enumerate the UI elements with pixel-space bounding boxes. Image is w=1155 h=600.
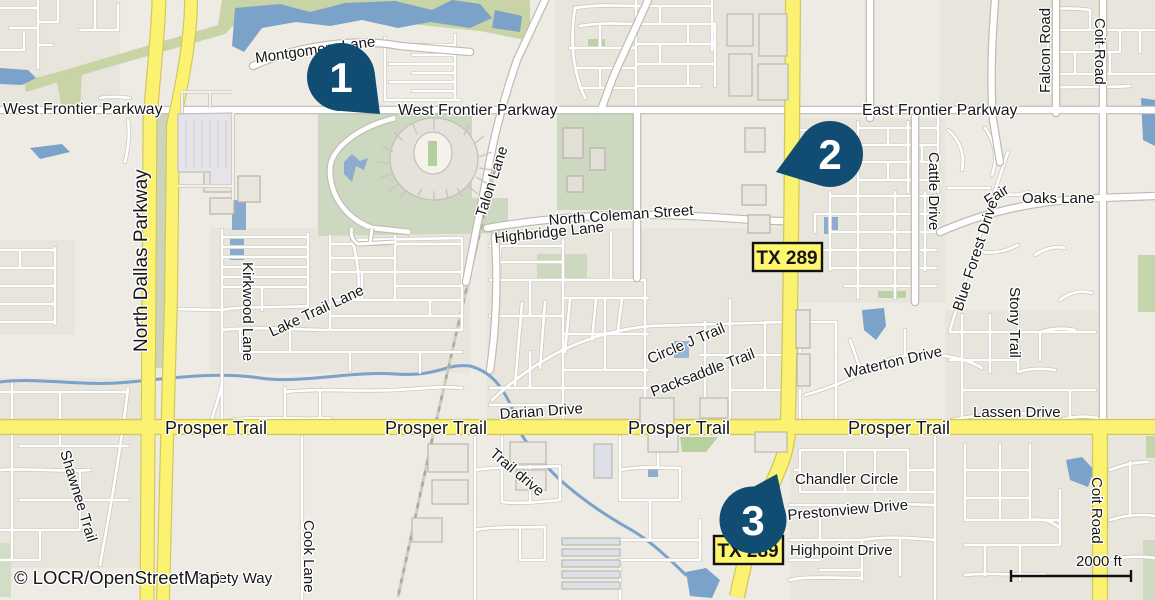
svg-text:West Frontier Parkway: West Frontier Parkway	[398, 102, 558, 119]
svg-text:Chandler Circle: Chandler Circle	[795, 471, 898, 488]
svg-text:Prosper Trail: Prosper Trail	[848, 418, 950, 438]
svg-text:Falcon Road: Falcon Road	[1037, 8, 1054, 93]
svg-text:Cook Lane: Cook Lane	[300, 520, 317, 593]
svg-text:TX 289: TX 289	[756, 248, 817, 269]
svg-text:Prosper Trail: Prosper Trail	[165, 418, 267, 438]
svg-text:2000 ft: 2000 ft	[1076, 553, 1123, 570]
svg-text:2: 2	[818, 131, 841, 178]
svg-text:Prosper Trail: Prosper Trail	[628, 418, 730, 438]
svg-text:Coit Road: Coit Road	[1088, 477, 1105, 544]
svg-text:© LOCR/OpenStreetMap: © LOCR/OpenStreetMap	[14, 567, 220, 588]
svg-text:Kirkwood Lane: Kirkwood Lane	[239, 262, 256, 361]
svg-text:Cattle Drive: Cattle Drive	[925, 152, 942, 230]
svg-text:Lassen Drive: Lassen Drive	[973, 404, 1061, 421]
svg-text:3: 3	[741, 497, 764, 544]
svg-text:West Frontier Parkway: West Frontier Parkway	[3, 101, 163, 118]
svg-text:Oaks Lane: Oaks Lane	[1022, 190, 1095, 207]
svg-text:North Dallas Parkway: North Dallas Parkway	[131, 169, 152, 352]
svg-text:East Frontier Parkway: East Frontier Parkway	[862, 102, 1017, 119]
svg-text:Prosper Trail: Prosper Trail	[385, 418, 487, 438]
svg-text:1: 1	[329, 54, 352, 101]
svg-text:Coit Road: Coit Road	[1091, 18, 1108, 85]
svg-text:Stony Trail: Stony Trail	[1006, 287, 1023, 358]
svg-text:Highpoint Drive: Highpoint Drive	[790, 542, 893, 559]
